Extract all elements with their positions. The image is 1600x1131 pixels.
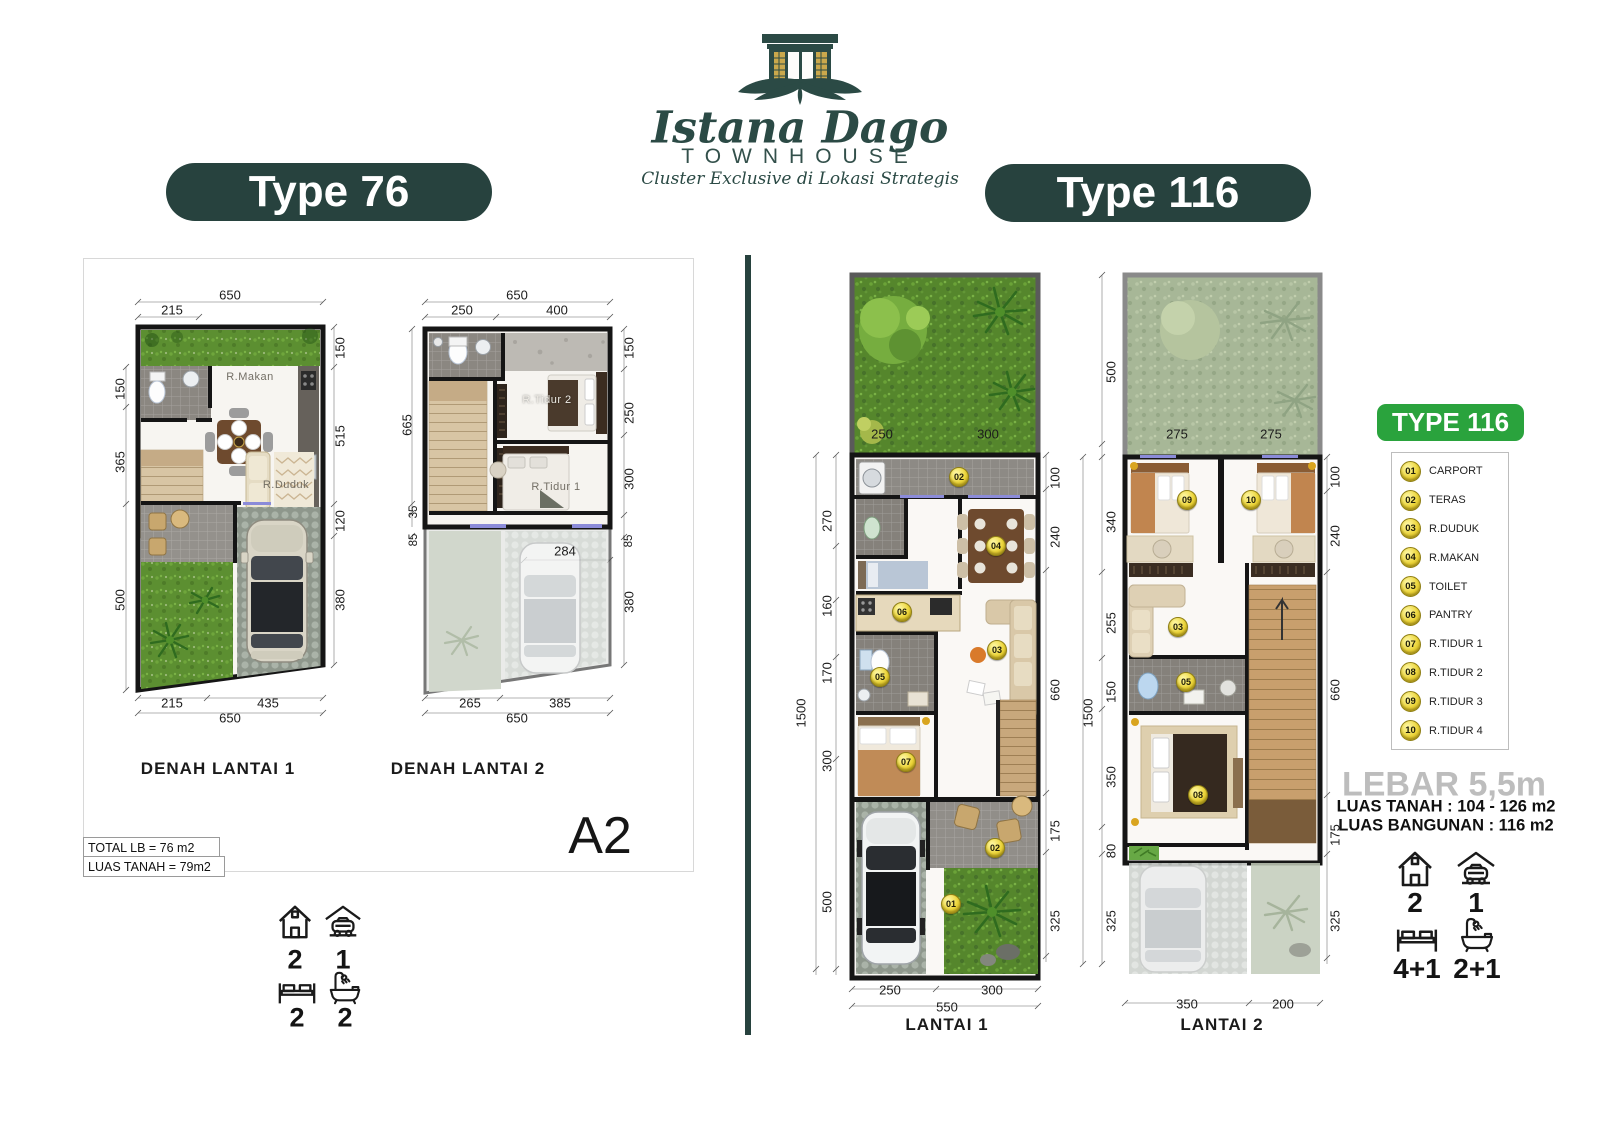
- type116-legend-badge: TYPE 116: [1377, 404, 1524, 441]
- dim-label: 240: [1048, 526, 1063, 548]
- legend-label: TOILET: [1429, 581, 1467, 593]
- type116-badge-label: Type 116: [1057, 168, 1240, 218]
- stat-bedrooms-76: 2: [289, 1003, 304, 1034]
- room-label-duduk: R.Duduk: [263, 479, 309, 491]
- dim-label: 85: [623, 535, 635, 548]
- dim-label: 650: [506, 711, 528, 726]
- dim-label: 275: [1260, 427, 1282, 442]
- dim-label: 150: [1104, 681, 1119, 703]
- dim-label: 300: [622, 468, 637, 490]
- room-label-tidur2: R.Tidur 2: [522, 394, 571, 406]
- legend-item-rduduk: 03R.DUDUK: [1400, 518, 1508, 539]
- dim-label: 385: [549, 696, 571, 711]
- dim-label: 160: [820, 595, 835, 617]
- carport-icon: [1455, 849, 1497, 889]
- legend-num: 10: [1400, 720, 1421, 741]
- dim-label: 250: [871, 427, 893, 442]
- plan-caption-lantai2: LANTAI 2: [1180, 1015, 1263, 1035]
- luas-tanah-box: LUAS TANAH = 79m2: [83, 856, 225, 877]
- dim-label: 35: [408, 506, 420, 519]
- carport-icon: [323, 903, 363, 941]
- dim-label: 120: [333, 510, 348, 532]
- dim-label: 255: [1104, 612, 1119, 634]
- legend-label: TERAS: [1429, 494, 1466, 506]
- dim-label: 215: [161, 696, 183, 711]
- dim-label: 650: [506, 288, 528, 303]
- dim-label: 200: [1272, 997, 1294, 1012]
- dim-label: 150: [622, 337, 637, 359]
- legend-label: CARPORT: [1429, 465, 1483, 477]
- legend-item-rtidur1: 07R.TIDUR 1: [1400, 634, 1508, 655]
- bed-icon: [1394, 919, 1440, 955]
- brochure-page: Istana Dago TOWNHOUSE Cluster Exclusive …: [0, 0, 1600, 1131]
- bathtub-icon: [326, 969, 364, 1007]
- stat-floors-76: 2: [287, 945, 302, 976]
- dim-label: 1500: [794, 699, 809, 728]
- dim-label: 150: [333, 337, 348, 359]
- dim-label: 300: [981, 983, 1003, 998]
- dim-label: 100: [1328, 466, 1343, 488]
- room-label-tidur1: R.Tidur 1: [531, 481, 580, 493]
- room-label-makan: R.Makan: [226, 371, 274, 383]
- dim-label: 665: [400, 414, 415, 436]
- legend-num: 07: [1400, 634, 1421, 655]
- dim-label: 300: [977, 427, 999, 442]
- dim-label: 240: [1328, 525, 1343, 547]
- dim-label: 250: [622, 402, 637, 424]
- luas-tanah-116: LUAS TANAH : 104 - 126 m2: [1337, 798, 1556, 817]
- dim-label: 250: [879, 983, 901, 998]
- legend-num: 01: [1400, 461, 1421, 482]
- dim-label: 340: [1104, 511, 1119, 533]
- dim-label: 660: [1328, 679, 1343, 701]
- legend-label: R.TIDUR 2: [1429, 667, 1483, 679]
- luas-tanah-text: LUAS TANAH = 79m2: [88, 860, 211, 874]
- type76-floorplan-lantai1: [95, 285, 355, 725]
- house-icon: [276, 903, 314, 941]
- luas-bangunan-116: LUAS BANGUNAN : 116 m2: [1338, 817, 1553, 836]
- unit-code: A2: [568, 806, 632, 866]
- room-marker: 02: [949, 467, 969, 487]
- dim-label: 500: [1104, 361, 1119, 383]
- dim-label: 85: [408, 534, 420, 547]
- dim-label: 550: [936, 1000, 958, 1015]
- dim-label: 175: [1048, 820, 1063, 842]
- dim-label: 650: [219, 711, 241, 726]
- room-marker: 08: [1188, 785, 1208, 805]
- plan-caption-lantai1: LANTAI 1: [905, 1015, 988, 1035]
- dim-label: 380: [622, 591, 637, 613]
- legend-item-teras: 02TERAS: [1400, 490, 1508, 511]
- legend-item-rmakan: 04R.MAKAN: [1400, 547, 1508, 568]
- total-lb-box: TOTAL LB = 76 m2: [83, 837, 220, 858]
- dim-label: 275: [1166, 427, 1188, 442]
- legend-item-rtidur2: 08R.TIDUR 2: [1400, 662, 1508, 683]
- legend-item-pantry: 06PANTRY: [1400, 605, 1508, 626]
- dim-label: 650: [219, 288, 241, 303]
- legend-item-toilet: 05TOILET: [1400, 576, 1508, 597]
- legend-num: 09: [1400, 691, 1421, 712]
- legend-item-rtidur3: 09R.TIDUR 3: [1400, 691, 1508, 712]
- stat-floors-116: 2: [1407, 887, 1423, 919]
- legend-title: TYPE 116: [1392, 407, 1509, 438]
- room-marker: 05: [870, 667, 890, 687]
- legend-item-carport: 01CARPORT: [1400, 461, 1508, 482]
- room-marker: 10: [1241, 490, 1261, 510]
- dim-label: 80: [1104, 844, 1119, 858]
- plan-caption-denah1: DENAH LANTAI 1: [141, 759, 295, 779]
- legend-num: 02: [1400, 490, 1421, 511]
- room-marker: 01: [941, 894, 961, 914]
- brand-tagline: Cluster Exclusive di Lokasi Strategis: [641, 169, 959, 189]
- dim-label: 325: [1328, 910, 1343, 932]
- stat-bathrooms-116: 2+1: [1453, 953, 1501, 985]
- stat-bathrooms-76: 2: [337, 1003, 352, 1034]
- dim-label: 100: [1048, 467, 1063, 489]
- room-marker: 03: [987, 640, 1007, 660]
- dim-label: 150: [113, 378, 128, 400]
- room-marker: 06: [892, 602, 912, 622]
- legend-item-rtidur4: 10R.TIDUR 4: [1400, 720, 1508, 741]
- dim-label: 350: [1104, 766, 1119, 788]
- type76-floorplan-lantai2: [390, 285, 655, 725]
- brand-logo-icon: [710, 32, 890, 106]
- legend-num: 04: [1400, 547, 1421, 568]
- dim-label: 435: [257, 696, 279, 711]
- dim-label: 365: [113, 451, 128, 473]
- total-lb-text: TOTAL LB = 76 m2: [88, 841, 194, 855]
- bathtub-icon: [1457, 915, 1497, 955]
- room-marker: 03: [1168, 617, 1188, 637]
- dim-label: 500: [820, 891, 835, 913]
- section-divider: [745, 255, 751, 1035]
- plan-caption-denah2: DENAH LANTAI 2: [391, 759, 545, 779]
- dim-label: 284: [554, 544, 576, 559]
- house-icon: [1395, 849, 1435, 889]
- legend-num: 05: [1400, 576, 1421, 597]
- dim-label: 300: [820, 750, 835, 772]
- type76-badge: Type 76: [166, 163, 492, 221]
- legend-num: 03: [1400, 518, 1421, 539]
- dim-label: 1500: [1081, 699, 1096, 728]
- room-legend: 01CARPORT 02TERAS 03R.DUDUK 04R.MAKAN 05…: [1391, 452, 1509, 750]
- dim-label: 515: [333, 425, 348, 447]
- dim-label: 265: [459, 696, 481, 711]
- brand-type: TOWNHOUSE: [681, 145, 918, 169]
- legend-label: R.MAKAN: [1429, 552, 1479, 564]
- dim-label: 660: [1048, 679, 1063, 701]
- type116-badge: Type 116: [985, 164, 1311, 222]
- legend-label: R.DUDUK: [1429, 523, 1479, 535]
- legend-label: R.TIDUR 3: [1429, 696, 1483, 708]
- dim-label: 170: [820, 662, 835, 684]
- dim-label: 325: [1048, 910, 1063, 932]
- dim-label: 350: [1176, 997, 1198, 1012]
- room-marker: 05: [1176, 672, 1196, 692]
- dim-label: 250: [451, 303, 473, 318]
- room-marker: 09: [1177, 490, 1197, 510]
- room-marker: 02: [985, 838, 1005, 858]
- dim-label: 325: [1104, 910, 1119, 932]
- room-marker: 04: [986, 536, 1006, 556]
- dim-label: 400: [546, 303, 568, 318]
- legend-num: 06: [1400, 605, 1421, 626]
- type76-badge-label: Type 76: [249, 167, 410, 217]
- dim-label: 380: [333, 589, 348, 611]
- legend-label: PANTRY: [1429, 609, 1473, 621]
- legend-label: R.TIDUR 4: [1429, 725, 1483, 737]
- dim-label: 270: [820, 510, 835, 532]
- dim-label: 500: [113, 589, 128, 611]
- legend-label: R.TIDUR 1: [1429, 638, 1483, 650]
- legend-num: 08: [1400, 662, 1421, 683]
- dim-label: 215: [161, 303, 183, 318]
- stat-bedrooms-116: 4+1: [1393, 953, 1441, 985]
- room-marker: 07: [896, 752, 916, 772]
